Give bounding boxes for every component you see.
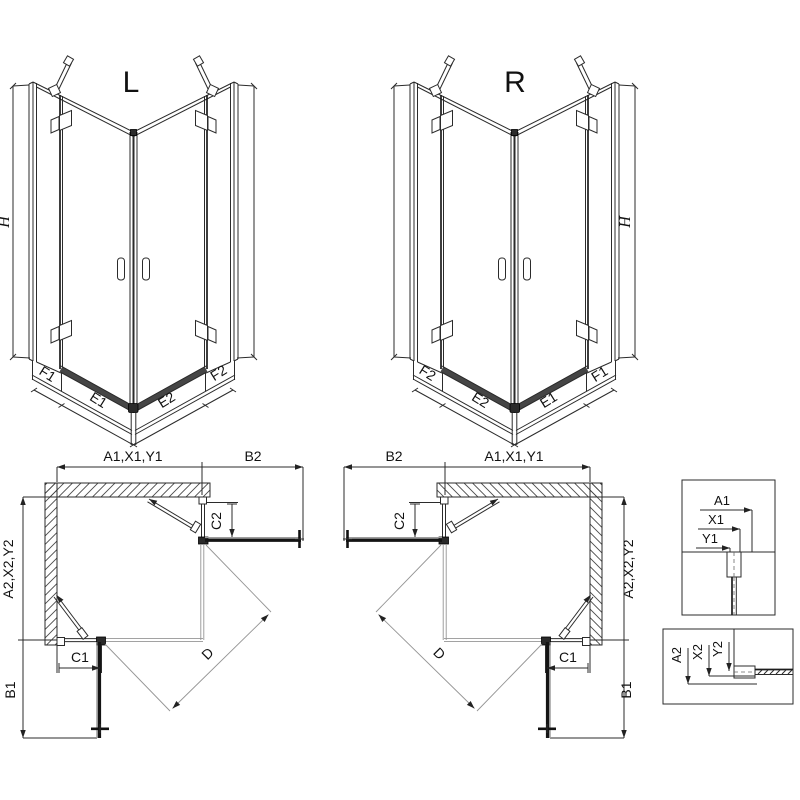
dim-label-e2: E2 <box>155 388 178 411</box>
dim-label-depth: A2,X2,Y2 <box>0 539 16 598</box>
dim-label-c1: C1 <box>559 649 577 665</box>
dim-label-f2: F2 <box>416 362 439 384</box>
detail-inset-depth: A2 X2 Y2 <box>658 622 798 714</box>
dim-label-b2: B2 <box>385 448 402 464</box>
detail-label-y2: Y2 <box>710 641 725 657</box>
dim-label-b1: B1 <box>618 681 634 698</box>
dim-label-f2: F2 <box>207 362 230 384</box>
dim-label-b1: B1 <box>2 681 18 698</box>
dim-label-f1: F1 <box>588 363 611 385</box>
variant-label-left: L <box>123 66 140 99</box>
iso-view-left: L H F1 E1 E2 F2 <box>0 40 270 460</box>
detail-label-a2: A2 <box>669 647 684 663</box>
dim-label-height: H <box>0 215 13 229</box>
detail-label-a1: A1 <box>714 493 730 508</box>
dim-label-depth: A2,X2,Y2 <box>620 539 636 598</box>
technical-drawing-sheet: L H F1 E1 E2 F2 R H F2 E2 E1 F1 A1,X1,Y1… <box>0 0 800 800</box>
detail-label-x2: X2 <box>690 644 705 660</box>
dim-label-width: A1,X1,Y1 <box>484 448 543 464</box>
iso-view-right: R H F2 E2 E1 F1 <box>378 40 648 460</box>
dim-label-diagonal: D <box>430 644 448 662</box>
dim-label-height: H <box>617 215 634 229</box>
detail-label-x1: X1 <box>708 512 724 527</box>
dim-label-f1: F1 <box>36 363 59 385</box>
dim-label-width: A1,X1,Y1 <box>103 448 162 464</box>
plan-view-right: A1,X1,Y1 B2 C2 A2,X2,Y2 C1 B1 D <box>327 445 649 767</box>
dim-label-b2: B2 <box>244 448 261 464</box>
variant-label-right: R <box>504 66 526 99</box>
dim-label-c2: C2 <box>208 512 224 530</box>
dim-label-c2: C2 <box>391 512 407 530</box>
dim-label-c1: C1 <box>71 649 89 665</box>
detail-inset-width: A1 X1 Y1 <box>672 472 787 624</box>
dim-label-diagonal: D <box>198 644 216 662</box>
plan-view-left: A1,X1,Y1 B2 C2 A2,X2,Y2 C1 B1 D <box>0 445 322 767</box>
detail-label-y1: Y1 <box>702 531 718 546</box>
